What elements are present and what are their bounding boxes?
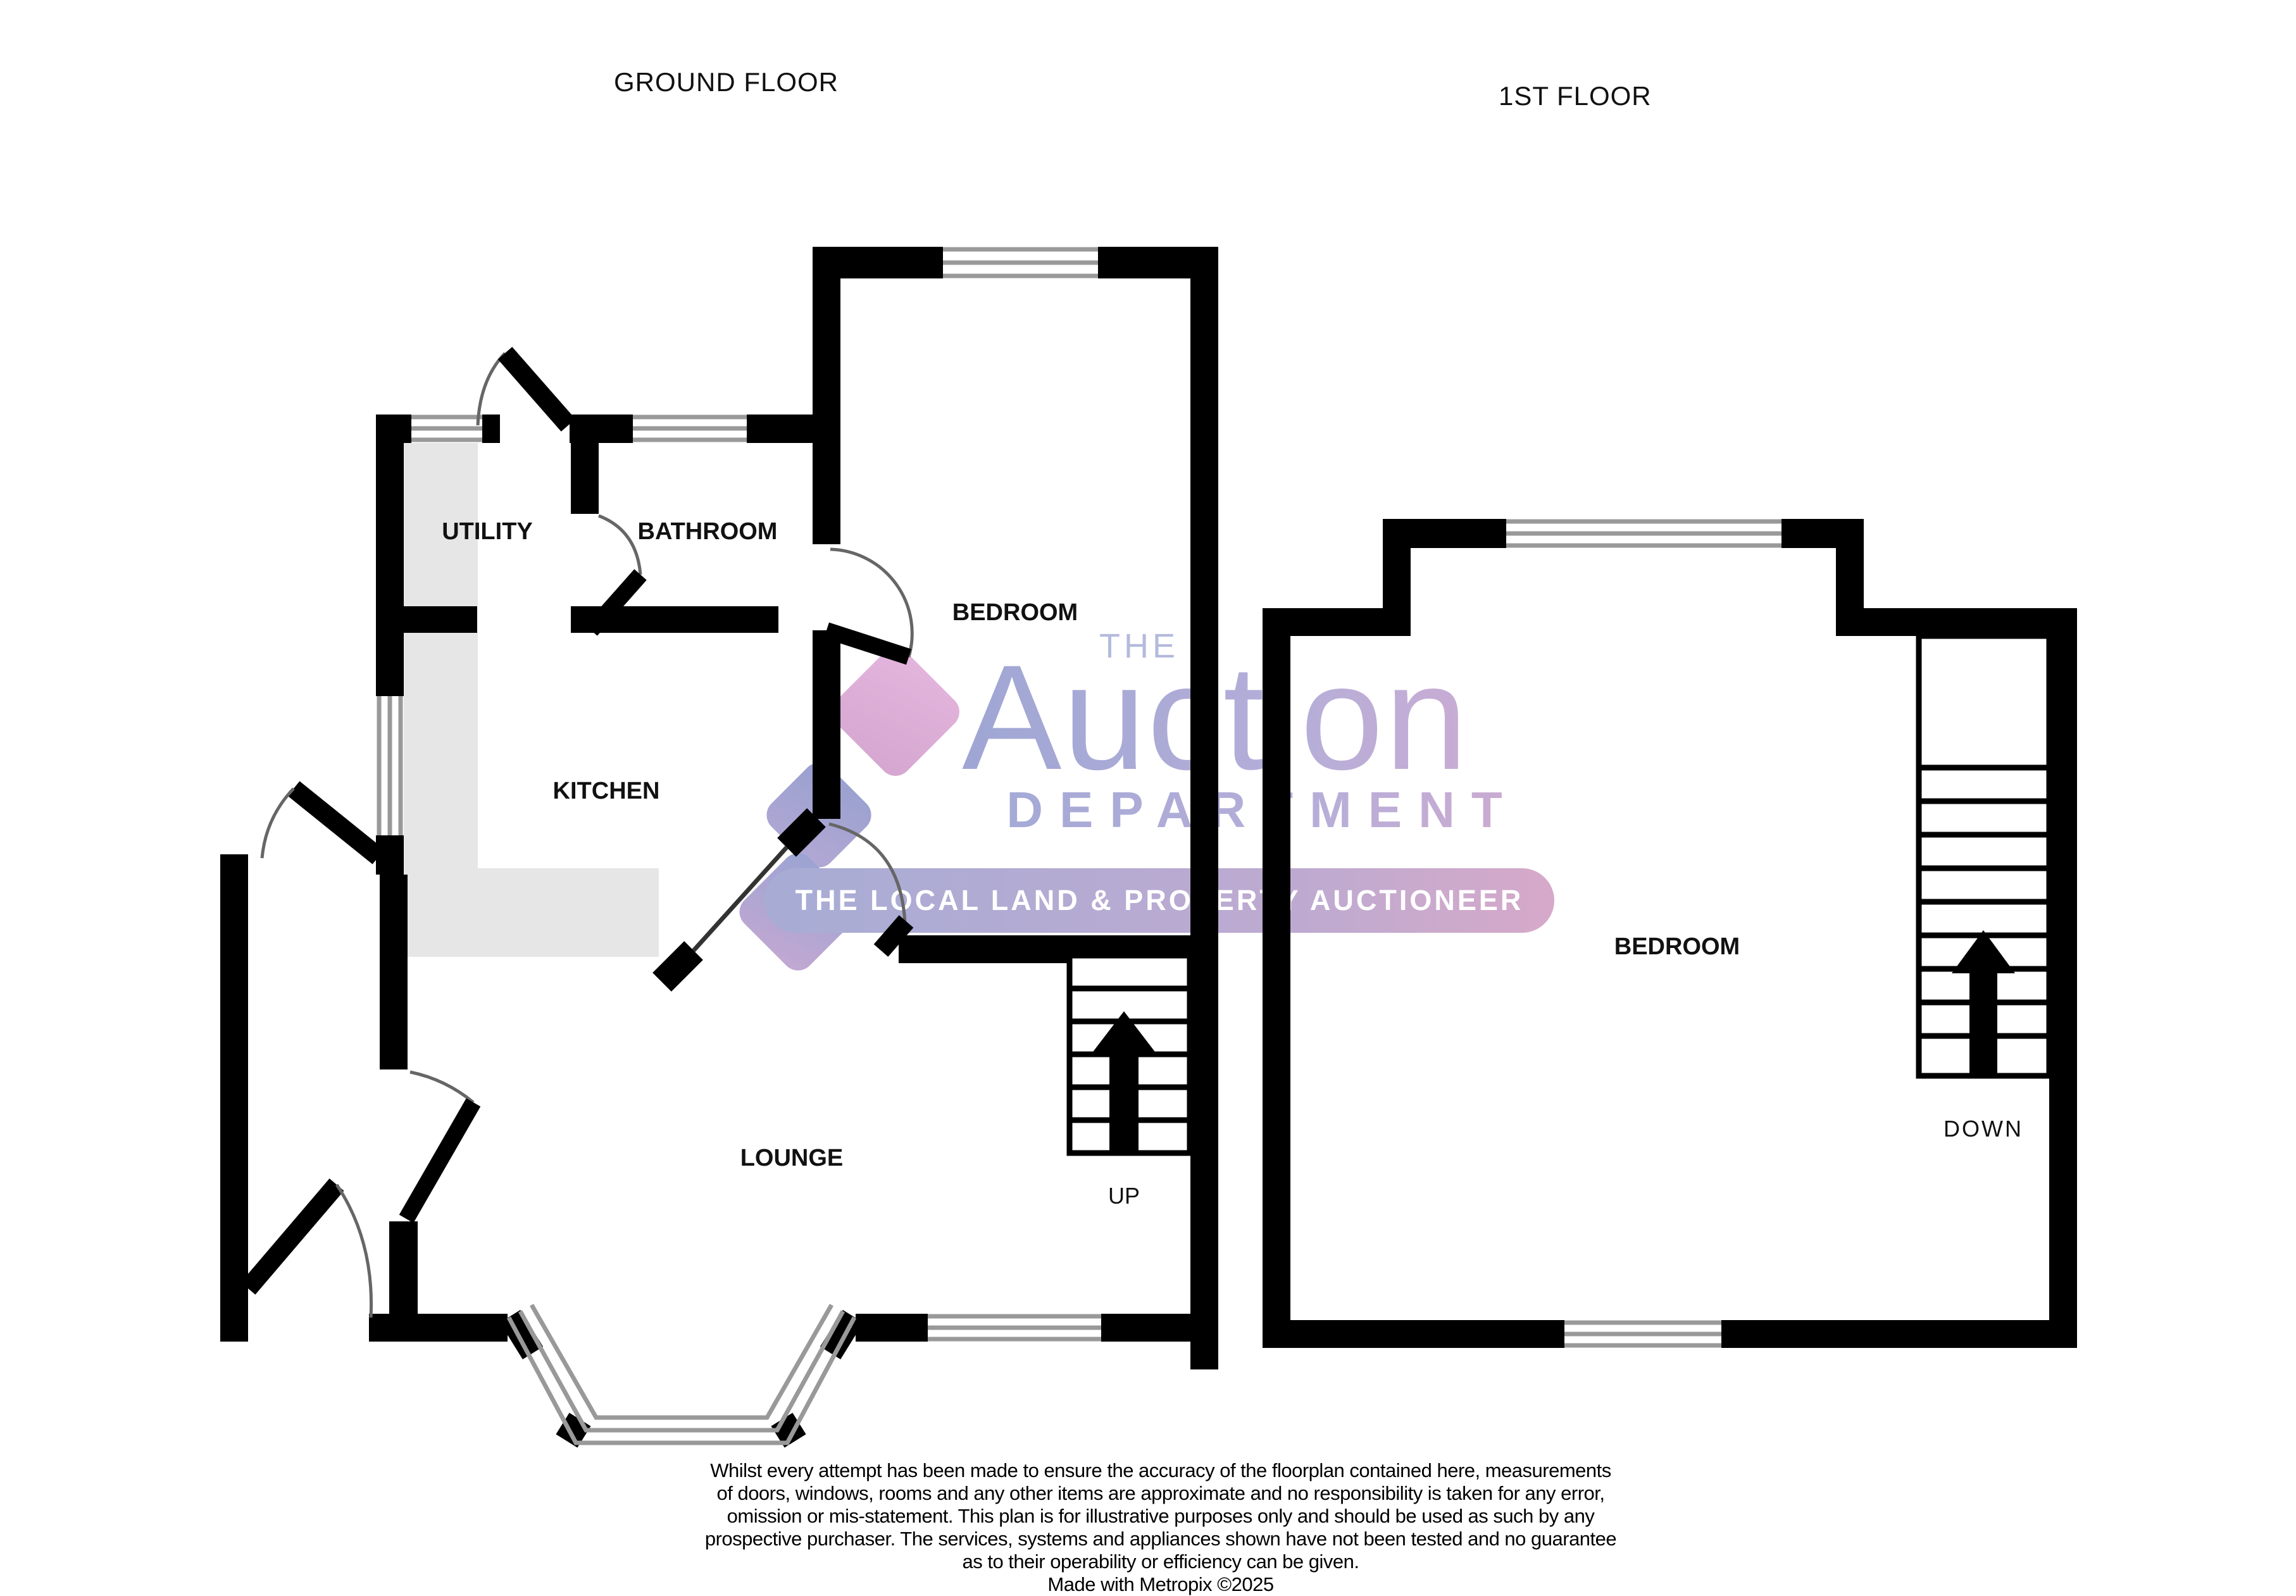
hall-door-arc [410,1072,473,1102]
wall-stub [787,818,816,847]
disclaimer-line: omission or mis-statement. This plan is … [642,1505,1680,1528]
hall-door-leaf [406,1102,473,1219]
wall [376,835,404,875]
back-door-arc [478,353,505,425]
first-floor-plan: BEDROOM DOWN [1263,519,2077,1348]
wall-stub [662,951,694,982]
metropix-credit: Made with Metropix ©2025 [642,1573,1680,1596]
kitchen-counter-horizontal-fill [404,868,659,957]
wall [1836,608,2077,636]
ground-floor-plan: UTILITY BATHROOM BEDROOM KITCHEN LOUNGE … [220,247,1218,1448]
down-arrow-shaft-icon [1969,964,1997,1075]
wall [813,247,840,544]
kitchen-label: KITCHEN [553,778,660,804]
ground-floor-labels: UTILITY BATHROOM BEDROOM KITCHEN LOUNGE … [442,518,1140,1209]
first-floor-title: 1ST FLOOR [1499,81,1652,111]
wall [570,415,633,443]
wall [220,854,248,1342]
bathroom-window [633,416,747,442]
disclaimer-line: Whilst every attempt has been made to en… [642,1459,1680,1482]
bathroom-door-arc [599,516,640,575]
first-bedroom-label: BEDROOM [1614,933,1740,960]
down-label: DOWN [1943,1116,2023,1142]
front-door-leaf [248,1185,337,1288]
ground-bedroom-label: BEDROOM [952,599,1078,626]
back-door-leaf [505,353,568,425]
stairs-up [1070,956,1190,1153]
wall [856,1314,928,1342]
disclaimer-block: Whilst every attempt has been made to en… [642,1459,1680,1596]
utility-label: UTILITY [442,518,533,545]
utility-window [411,416,482,442]
wall [1263,608,1290,1348]
front-door-arc [337,1185,371,1318]
wall [571,443,599,514]
bay-window [509,1305,854,1443]
kitchen-side-window [377,696,402,835]
wall [1263,1320,1564,1348]
first-bedroom-top-window [1506,520,1781,547]
wall [747,415,840,443]
floorplan-drawing: UTILITY BATHROOM BEDROOM KITCHEN LOUNGE … [0,0,2296,1568]
lounge-label: LOUNGE [740,1145,844,1171]
disclaimer-line: of doors, windows, rooms and any other i… [642,1482,1680,1505]
kitchen-counter-vertical-fill [404,632,478,868]
up-label: UP [1108,1183,1140,1209]
wall [1190,247,1218,1369]
wall [380,875,408,1069]
disclaimer-line: as to their operability or efficiency ca… [642,1550,1680,1573]
wall [1721,1320,2077,1348]
side-door-arc [262,789,294,858]
wall [389,1221,418,1316]
disclaimer-line: prospective purchaser. The services, sys… [642,1528,1680,1550]
wall [376,415,404,696]
kitchen-doorway-line [694,847,787,951]
bedroom-lounge-door-arc [829,824,905,924]
wall [813,630,840,819]
up-arrow-shaft-icon [1109,1045,1139,1152]
wall [369,1314,508,1342]
wall [482,415,500,443]
side-door-leaf [294,789,378,857]
wall [2049,608,2077,1348]
first-bedroom-bottom-window [1564,1321,1721,1347]
bedroom-window [943,248,1098,277]
wall [1101,1314,1218,1342]
bathroom-label: BATHROOM [638,518,778,545]
stairs-down [1919,636,2049,1076]
lounge-window [928,1315,1101,1340]
wall [376,606,477,633]
ground-floor-title: GROUND FLOOR [614,67,839,97]
